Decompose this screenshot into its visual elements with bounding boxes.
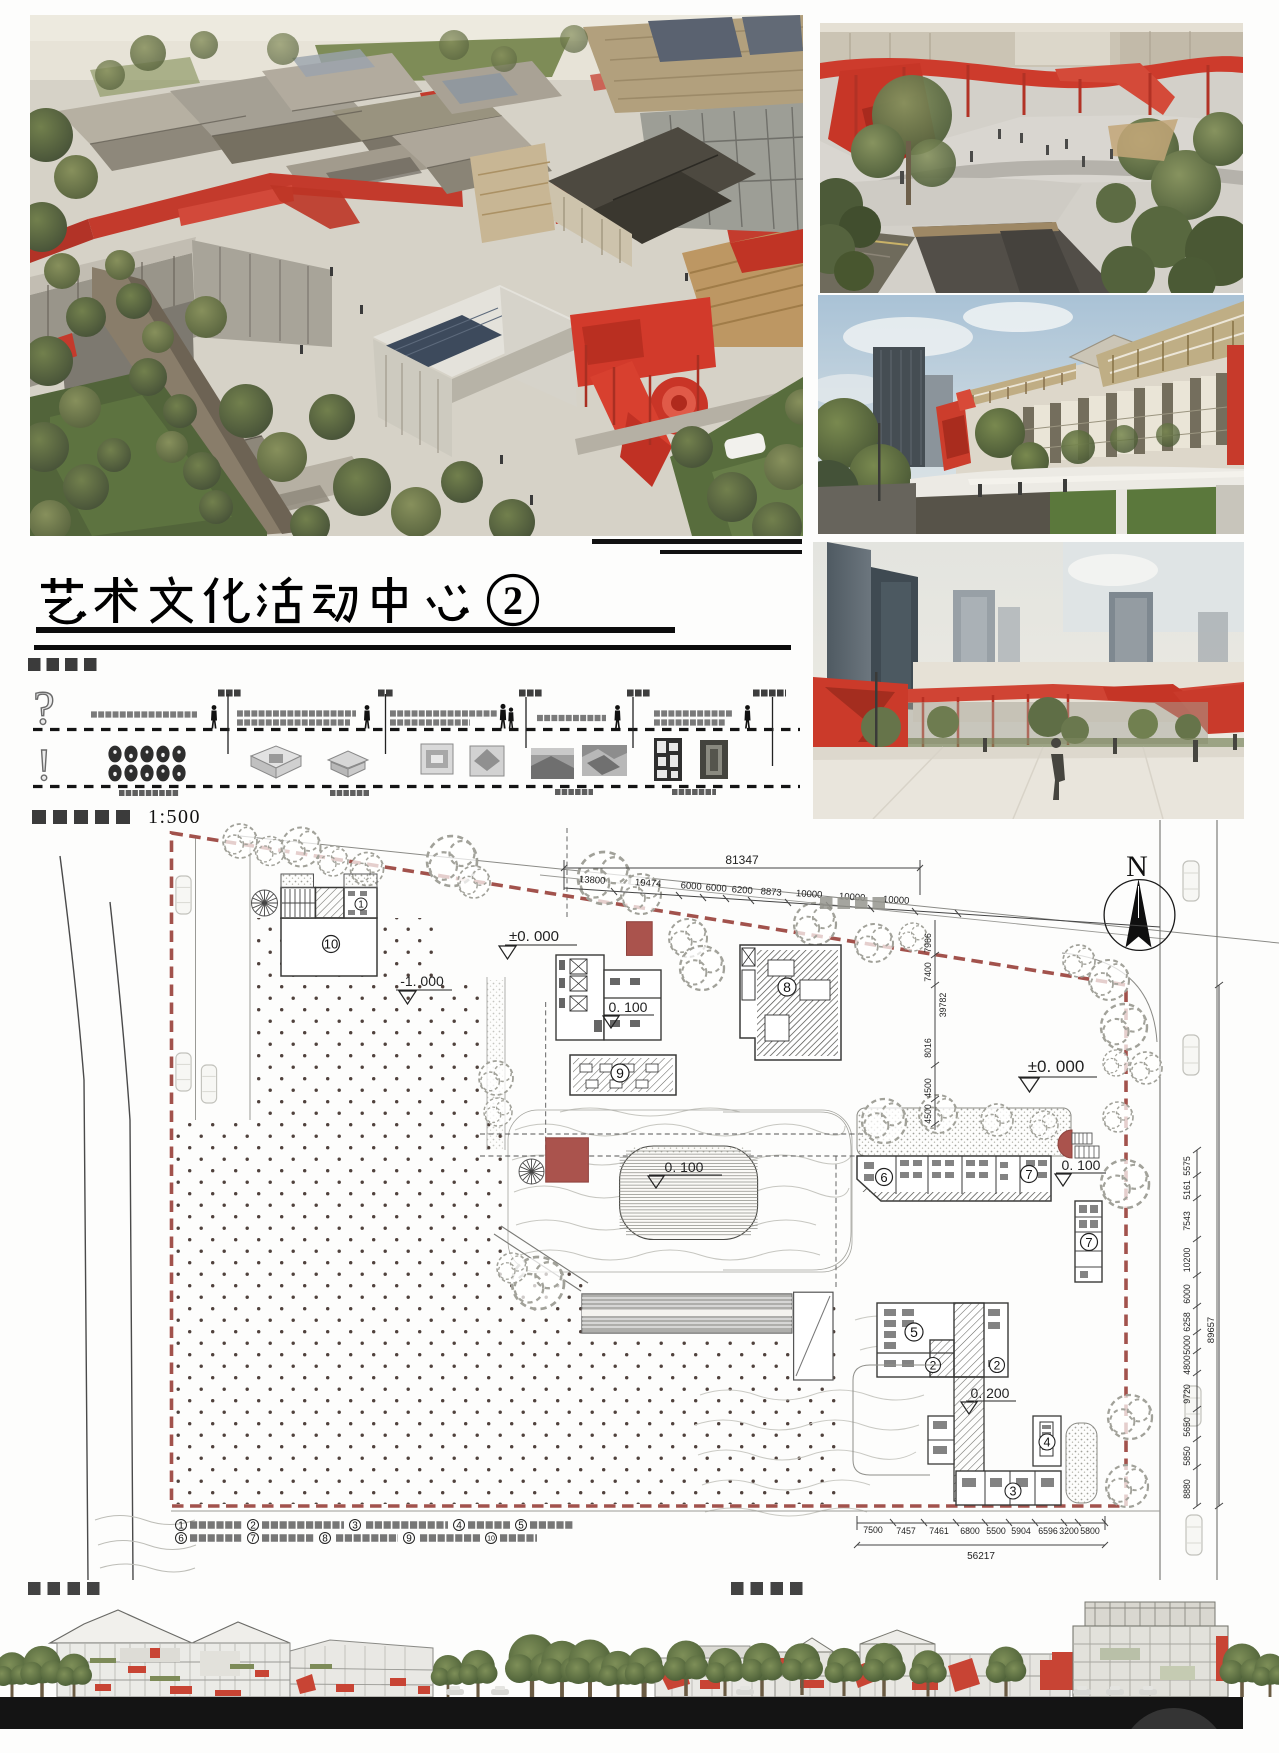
svg-text:6596: 6596	[1038, 1526, 1058, 1536]
svg-text:5800: 5800	[1080, 1526, 1100, 1536]
svg-text:7: 7	[1025, 1167, 1032, 1182]
svg-text:10200: 10200	[1182, 1248, 1192, 1273]
svg-text:3: 3	[352, 1521, 358, 1532]
svg-text:4500: 4500	[923, 1104, 933, 1124]
svg-text:6258: 6258	[1182, 1312, 1192, 1332]
svg-text:4500: 4500	[923, 1078, 933, 1098]
svg-text:3: 3	[1010, 1485, 1017, 1499]
svg-text:7966: 7966	[923, 933, 933, 953]
svg-text:1: 1	[358, 900, 364, 911]
svg-text:7400: 7400	[923, 962, 933, 982]
svg-text:13800: 13800	[579, 874, 606, 887]
svg-text:10000: 10000	[796, 888, 823, 901]
svg-text:5: 5	[518, 1521, 524, 1532]
svg-text:2: 2	[250, 1521, 256, 1532]
svg-text:10: 10	[487, 1536, 495, 1543]
svg-text:7457: 7457	[896, 1526, 916, 1536]
svg-text:6000: 6000	[1182, 1284, 1192, 1304]
svg-text:0. 100: 0. 100	[665, 1159, 704, 1175]
svg-text:7500: 7500	[863, 1525, 883, 1535]
svg-text:9: 9	[406, 1534, 412, 1545]
svg-text:7: 7	[1085, 1235, 1092, 1250]
svg-text:8: 8	[322, 1534, 328, 1545]
svg-text:?: ?	[33, 682, 54, 735]
svg-text:7461: 7461	[929, 1526, 949, 1536]
svg-text:±0. 000: ±0. 000	[1028, 1057, 1085, 1076]
svg-text:4800: 4800	[1182, 1355, 1192, 1375]
svg-text:5850: 5850	[1182, 1446, 1192, 1466]
svg-text:5: 5	[910, 1324, 918, 1340]
svg-text:5000: 5000	[1182, 1335, 1192, 1355]
svg-text:56217: 56217	[967, 1551, 995, 1562]
svg-text:8016: 8016	[923, 1038, 933, 1058]
svg-text:1: 1	[178, 1521, 184, 1532]
svg-text:2: 2	[503, 578, 523, 623]
svg-text:8: 8	[783, 979, 791, 995]
svg-text:2: 2	[994, 1359, 1001, 1373]
svg-text:4: 4	[1044, 1436, 1051, 1450]
svg-text:6200: 6200	[731, 884, 753, 896]
svg-text:4: 4	[456, 1521, 462, 1532]
svg-text:8880: 8880	[1182, 1479, 1192, 1499]
svg-text:N: N	[1126, 850, 1148, 883]
svg-text:!: !	[36, 739, 51, 790]
svg-text:39782: 39782	[938, 993, 948, 1018]
svg-text:3200: 3200	[1059, 1526, 1079, 1536]
svg-text:81347: 81347	[725, 853, 759, 867]
svg-text:5650: 5650	[1182, 1417, 1192, 1437]
svg-text:5161: 5161	[1182, 1180, 1192, 1200]
svg-text:±0. 000: ±0. 000	[509, 928, 559, 945]
svg-text:5500: 5500	[986, 1526, 1006, 1536]
svg-text:6: 6	[880, 1170, 887, 1185]
svg-text:0. 100: 0. 100	[1062, 1157, 1101, 1173]
svg-text:6: 6	[178, 1534, 184, 1545]
svg-text:6800: 6800	[960, 1526, 980, 1536]
svg-text:0. 100: 0. 100	[609, 999, 648, 1015]
svg-text:89657: 89657	[1206, 1317, 1217, 1343]
svg-text:10: 10	[324, 937, 338, 952]
svg-text:8873: 8873	[760, 886, 782, 898]
svg-text:19474: 19474	[635, 877, 662, 890]
svg-text:-1. 000: -1. 000	[400, 973, 444, 989]
svg-text:7: 7	[250, 1534, 256, 1545]
svg-text:5904: 5904	[1011, 1526, 1031, 1536]
svg-text:7543: 7543	[1182, 1211, 1192, 1231]
svg-text:5575: 5575	[1182, 1156, 1192, 1176]
svg-text:9: 9	[616, 1065, 624, 1081]
svg-text:10000: 10000	[883, 894, 910, 907]
svg-text:6000: 6000	[680, 880, 702, 892]
svg-text:6000: 6000	[705, 882, 727, 894]
svg-text:9720: 9720	[1182, 1384, 1192, 1404]
